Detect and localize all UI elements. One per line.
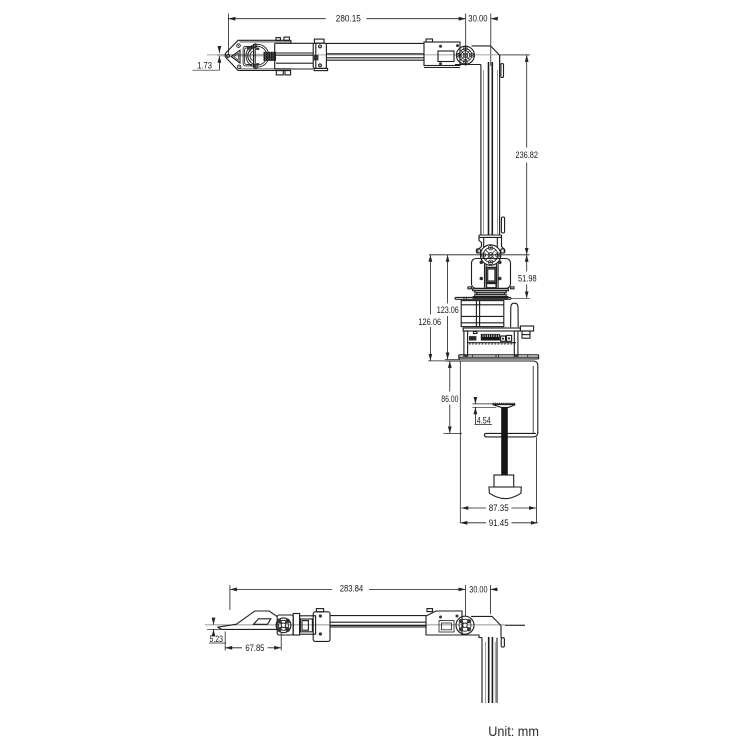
svg-text:123.06: 123.06 xyxy=(437,305,459,315)
svg-text:1.73: 1.73 xyxy=(197,60,212,70)
svg-text:Unit: mm: Unit: mm xyxy=(488,724,539,739)
svg-text:87.35: 87.35 xyxy=(489,503,509,513)
svg-text:51.98: 51.98 xyxy=(518,274,537,284)
svg-text:91.45: 91.45 xyxy=(489,518,509,528)
svg-text:30.00: 30.00 xyxy=(469,584,487,594)
svg-text:4.54: 4.54 xyxy=(477,415,491,425)
svg-text:5.23: 5.23 xyxy=(210,634,224,644)
svg-text:126.06: 126.06 xyxy=(418,317,441,327)
svg-text:86.00: 86.00 xyxy=(441,394,458,404)
svg-text:236.82: 236.82 xyxy=(516,150,538,160)
svg-text:67.85: 67.85 xyxy=(245,643,264,653)
svg-text:280.15: 280.15 xyxy=(336,14,361,24)
svg-text:30.00: 30.00 xyxy=(468,14,487,24)
svg-text:283.84: 283.84 xyxy=(340,583,364,593)
